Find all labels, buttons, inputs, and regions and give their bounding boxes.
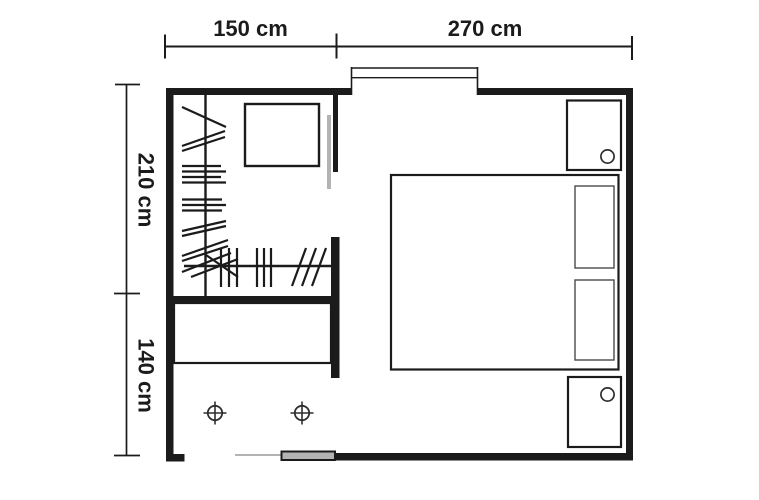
svg-text:150 cm: 150 cm — [213, 16, 288, 41]
svg-text:270 cm: 270 cm — [448, 16, 523, 41]
svg-text:210 cm: 210 cm — [134, 153, 159, 228]
svg-text:140 cm: 140 cm — [134, 338, 159, 413]
